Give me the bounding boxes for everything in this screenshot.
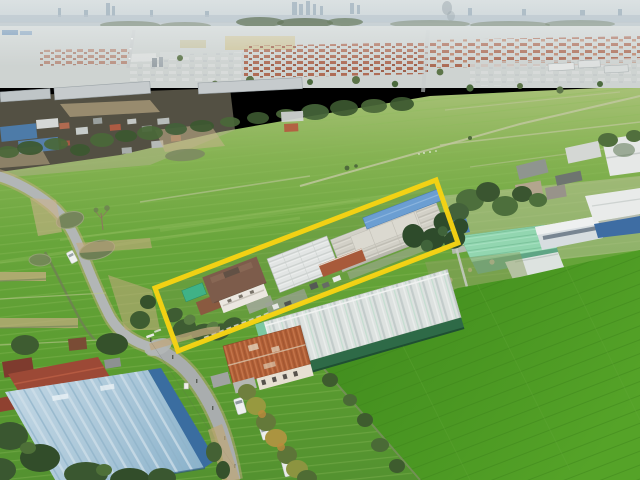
wood-cabin [68, 337, 87, 351]
aerial-photo [0, 0, 640, 480]
suburban-band [0, 26, 640, 94]
village-building-mid [281, 111, 303, 122]
suburb-haze-overlay [0, 26, 640, 66]
spirit-shrine [184, 383, 189, 389]
village-building-red [284, 123, 298, 132]
